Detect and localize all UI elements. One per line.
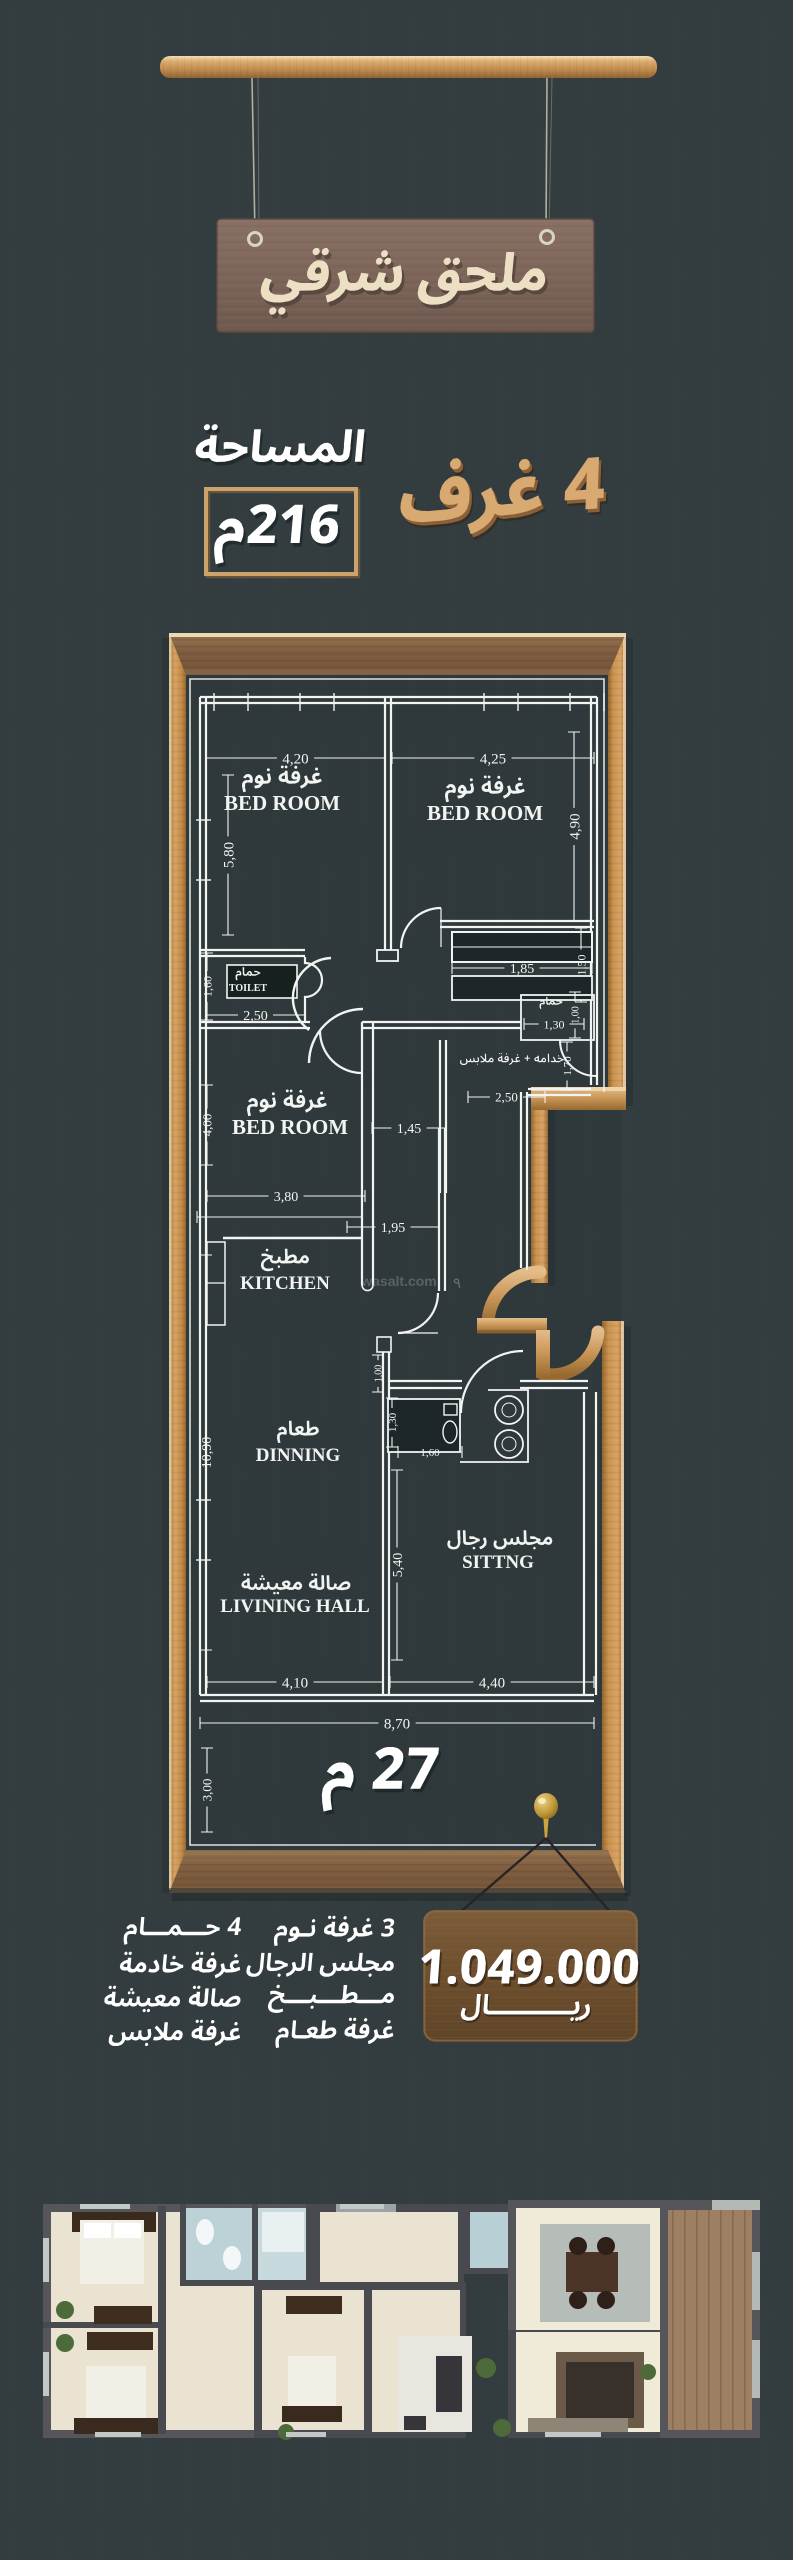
- svg-text:1,30: 1,30: [387, 1412, 399, 1432]
- svg-text:5,40: 5,40: [391, 1553, 406, 1578]
- svg-text:BED ROOM: BED ROOM: [427, 801, 543, 825]
- svg-text:SITTNG: SITTNG: [462, 1552, 534, 1573]
- svg-text:BED ROOM: BED ROOM: [224, 791, 340, 815]
- svg-text:1,30: 1,30: [544, 1017, 565, 1031]
- svg-text:1,70: 1,70: [562, 1056, 574, 1076]
- svg-text:DINNING: DINNING: [256, 1445, 341, 1466]
- svg-text:1,50: 1,50: [574, 955, 588, 976]
- svg-text:1,00: 1,00: [571, 1006, 582, 1024]
- svg-text:KITCHEN: KITCHEN: [240, 1273, 330, 1294]
- svg-text:8,70: 8,70: [384, 1716, 410, 1732]
- svg-text:5,80: 5,80: [221, 842, 237, 868]
- svg-text:3,80: 3,80: [274, 1190, 299, 1205]
- svg-text:wasalt.com: wasalt.com: [360, 1273, 436, 1289]
- svg-text:3,00: 3,00: [200, 1779, 215, 1802]
- svg-text:1,60: 1,60: [420, 1447, 440, 1459]
- svg-text:٩: ٩: [453, 1275, 461, 1292]
- svg-text:1,45: 1,45: [397, 1122, 422, 1137]
- svg-text:4,10: 4,10: [282, 1675, 308, 1691]
- svg-text:4,40: 4,40: [479, 1675, 505, 1691]
- svg-text:1,00: 1,00: [374, 1365, 385, 1383]
- svg-text:2,50: 2,50: [495, 1090, 518, 1105]
- svg-text:1,60: 1,60: [200, 976, 214, 997]
- svg-text:4,25: 4,25: [480, 751, 506, 767]
- svg-text:1,95: 1,95: [381, 1221, 406, 1236]
- svg-text:TOILET: TOILET: [229, 983, 267, 994]
- svg-text:4,20: 4,20: [282, 751, 308, 767]
- svg-text:1,85: 1,85: [510, 962, 535, 977]
- svg-text:10,90: 10,90: [200, 1437, 215, 1469]
- svg-text:LIVINING HALL: LIVINING HALL: [220, 1596, 369, 1617]
- svg-text:4,00: 4,00: [200, 1114, 215, 1137]
- svg-text:BED ROOM: BED ROOM: [232, 1115, 348, 1139]
- svg-text:4,90: 4,90: [567, 813, 583, 839]
